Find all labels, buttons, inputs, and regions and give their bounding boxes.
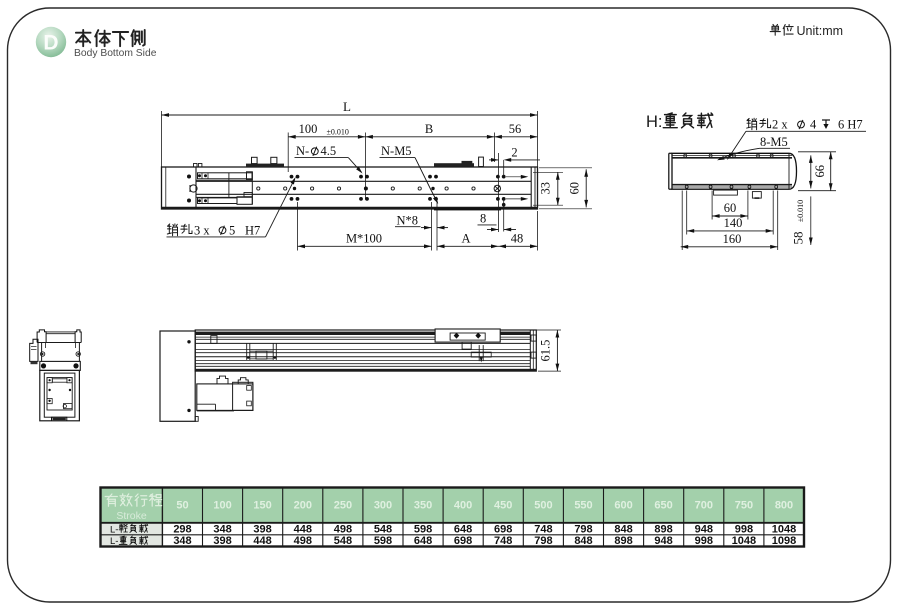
svg-text:50: 50 (176, 500, 188, 512)
svg-text:L: L (343, 99, 351, 114)
svg-text:33: 33 (539, 182, 553, 195)
svg-text:998: 998 (735, 523, 753, 535)
svg-text:N-: N- (296, 144, 309, 158)
svg-text:648: 648 (414, 535, 432, 547)
svg-text:3 x: 3 x (194, 224, 210, 238)
svg-text:550: 550 (574, 500, 592, 512)
svg-text:200: 200 (294, 500, 312, 512)
svg-text:348: 348 (213, 523, 231, 535)
svg-text:2: 2 (511, 146, 517, 160)
svg-text:58: 58 (791, 232, 806, 245)
svg-text:998: 998 (695, 535, 713, 547)
svg-text:650: 650 (654, 500, 672, 512)
svg-text:8-M5: 8-M5 (760, 135, 788, 149)
svg-text:4.5: 4.5 (321, 144, 337, 158)
svg-text:498: 498 (334, 523, 352, 535)
svg-text:±0.010: ±0.010 (327, 128, 349, 137)
svg-text:H:: H: (646, 113, 663, 131)
svg-text:4: 4 (810, 118, 817, 132)
svg-text:100: 100 (299, 122, 318, 136)
svg-text:60: 60 (724, 201, 737, 215)
svg-text:D: D (43, 32, 58, 55)
svg-text:448: 448 (294, 523, 312, 535)
svg-text:350: 350 (414, 500, 432, 512)
svg-text:H7: H7 (245, 224, 260, 238)
svg-text:748: 748 (494, 535, 512, 547)
svg-text:748: 748 (534, 523, 552, 535)
svg-text:698: 698 (454, 535, 472, 547)
svg-text:648: 648 (454, 523, 472, 535)
svg-text:100: 100 (213, 500, 231, 512)
svg-text:598: 598 (374, 535, 392, 547)
svg-text:150: 150 (253, 500, 271, 512)
svg-text:5: 5 (229, 224, 235, 238)
svg-text:398: 398 (213, 535, 231, 547)
svg-text:848: 848 (614, 523, 632, 535)
svg-text:2 x: 2 x (772, 118, 788, 132)
svg-text:598: 598 (414, 523, 432, 535)
svg-text:548: 548 (374, 523, 392, 535)
svg-text:948: 948 (654, 535, 672, 547)
svg-text:448: 448 (253, 535, 271, 547)
svg-text:8: 8 (480, 212, 486, 226)
svg-text:160: 160 (723, 232, 742, 246)
svg-text:548: 548 (334, 535, 352, 547)
svg-text:B: B (425, 122, 433, 136)
svg-text:56: 56 (509, 122, 522, 136)
svg-text:948: 948 (695, 523, 713, 535)
svg-text:6 H7: 6 H7 (838, 118, 863, 132)
svg-text:48: 48 (511, 231, 524, 245)
svg-text:Body Bottom Side: Body Bottom Side (74, 48, 157, 59)
svg-text:A: A (461, 231, 470, 245)
svg-text:61.5: 61.5 (539, 340, 553, 362)
svg-text:450: 450 (494, 500, 512, 512)
svg-text:400: 400 (454, 500, 472, 512)
svg-text:N-M5: N-M5 (381, 144, 412, 158)
svg-text:600: 600 (614, 500, 632, 512)
svg-text:300: 300 (374, 500, 392, 512)
svg-text:140: 140 (724, 216, 743, 230)
svg-text:Unit:mm: Unit:mm (797, 24, 844, 38)
svg-text:348: 348 (173, 535, 191, 547)
svg-text:L-: L- (110, 524, 118, 535)
svg-text:798: 798 (574, 523, 592, 535)
svg-text:250: 250 (334, 500, 352, 512)
svg-text:848: 848 (574, 535, 592, 547)
svg-text:898: 898 (614, 535, 632, 547)
svg-text:Stroke: Stroke (116, 510, 147, 522)
svg-text:±0.010: ±0.010 (796, 200, 805, 222)
svg-text:1098: 1098 (772, 535, 796, 547)
svg-text:60: 60 (567, 182, 581, 195)
svg-text:500: 500 (534, 500, 552, 512)
svg-text:750: 750 (735, 500, 753, 512)
svg-text:L-: L- (110, 536, 118, 547)
svg-text:898: 898 (654, 523, 672, 535)
svg-text:398: 398 (253, 523, 271, 535)
svg-text:M*100: M*100 (346, 231, 382, 245)
svg-text:800: 800 (775, 500, 793, 512)
svg-text:1048: 1048 (732, 535, 756, 547)
svg-text:498: 498 (294, 535, 312, 547)
svg-text:698: 698 (494, 523, 512, 535)
svg-text:66: 66 (813, 165, 827, 178)
svg-text:298: 298 (173, 523, 191, 535)
svg-text:N*8: N*8 (397, 213, 419, 227)
svg-text:798: 798 (534, 535, 552, 547)
svg-text:1048: 1048 (772, 523, 796, 535)
svg-text:700: 700 (695, 500, 713, 512)
